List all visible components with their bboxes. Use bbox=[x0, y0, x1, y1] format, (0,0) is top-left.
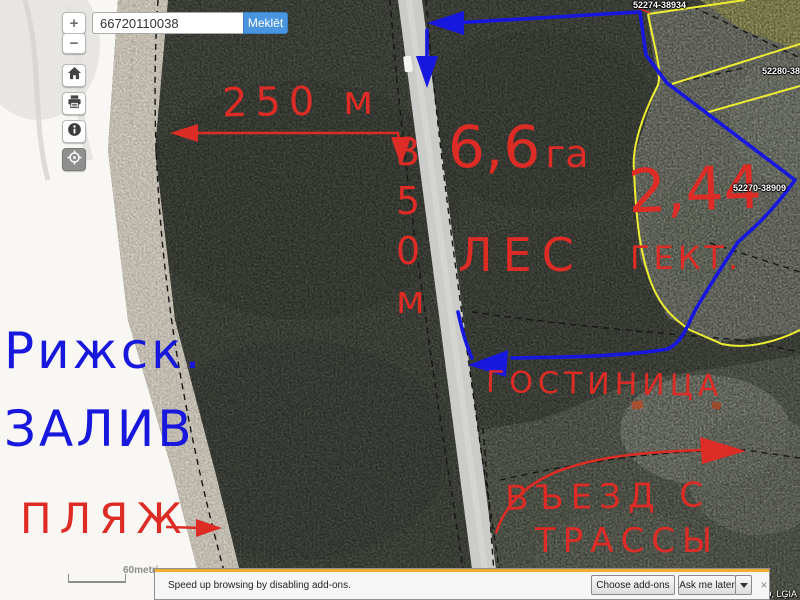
map-viewer: 250 м 3 5 0 м 6,6 га ЛЕС 2,44 ГЕКТ. Рижс… bbox=[0, 0, 800, 600]
notification-accent-stripe bbox=[155, 569, 769, 572]
notification-bar: Speed up browsing by disabling add-ons. … bbox=[154, 568, 770, 600]
search-button[interactable]: Meklēt bbox=[243, 12, 288, 34]
zoom-out-button[interactable]: − bbox=[62, 33, 86, 54]
chevron-down-icon bbox=[740, 583, 748, 588]
ask-me-later-button[interactable]: Ask me later bbox=[678, 575, 736, 595]
locate-crosshair-icon bbox=[67, 150, 82, 170]
map-canvas[interactable] bbox=[0, 0, 800, 600]
zoom-in-button[interactable]: + bbox=[62, 12, 86, 34]
parcel-label: 52274-38934 bbox=[633, 0, 686, 10]
locate-button[interactable] bbox=[62, 148, 86, 171]
close-icon[interactable]: × bbox=[757, 578, 771, 592]
print-button[interactable] bbox=[62, 92, 86, 115]
info-icon bbox=[67, 122, 82, 142]
home-icon bbox=[67, 66, 82, 86]
search-input[interactable] bbox=[92, 12, 243, 34]
parcel-label: 52270-38909 bbox=[733, 183, 786, 193]
choose-addons-button[interactable]: Choose add-ons bbox=[591, 575, 675, 595]
printer-icon bbox=[67, 94, 82, 114]
ask-later-dropdown-button[interactable] bbox=[735, 575, 752, 595]
scale-bar bbox=[68, 574, 126, 583]
parcel-label: 52280-3892 bbox=[762, 66, 800, 76]
notification-message: Speed up browsing by disabling add-ons. bbox=[168, 580, 351, 591]
home-button[interactable] bbox=[62, 64, 86, 87]
info-button[interactable] bbox=[62, 120, 86, 143]
